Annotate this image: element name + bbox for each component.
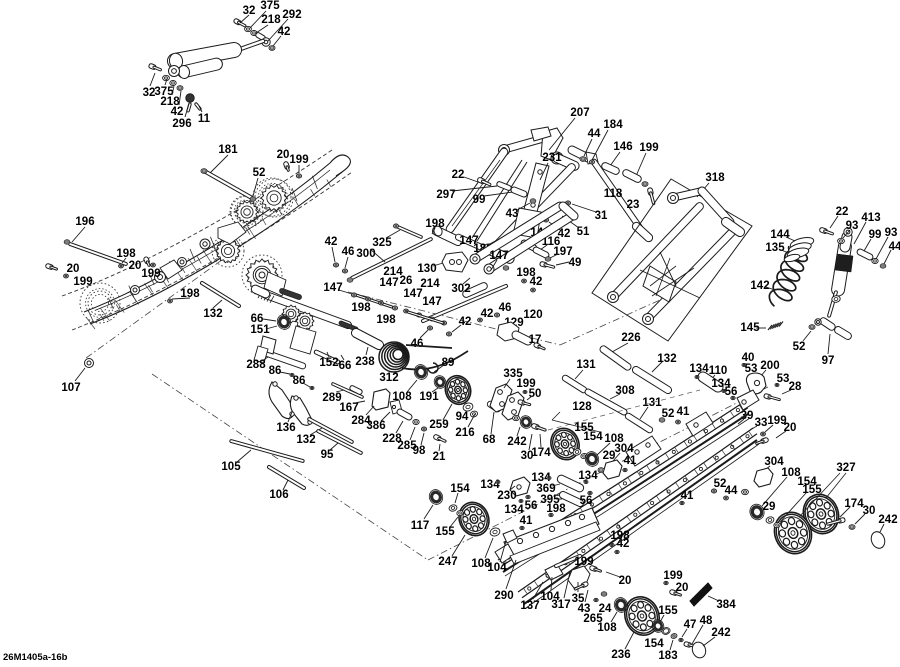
svg-text:120: 120 [523,309,542,321]
svg-text:105: 105 [221,461,241,473]
svg-text:20: 20 [619,575,632,587]
svg-text:375: 375 [260,0,280,12]
svg-text:198: 198 [116,248,136,260]
svg-text:47: 47 [684,619,697,631]
svg-text:42: 42 [617,538,630,550]
svg-text:288: 288 [246,359,266,371]
svg-text:135: 135 [765,242,785,254]
svg-text:136: 136 [276,422,295,434]
svg-text:238: 238 [355,356,375,368]
svg-text:384: 384 [716,599,736,611]
svg-text:46: 46 [499,302,512,314]
svg-text:231: 231 [542,152,562,164]
svg-text:181: 181 [218,144,238,156]
svg-text:33: 33 [755,417,768,429]
svg-text:199: 199 [289,154,308,166]
svg-text:152: 152 [319,357,338,369]
svg-text:52: 52 [253,167,266,179]
svg-text:29: 29 [763,501,776,513]
svg-text:304: 304 [614,443,634,455]
svg-text:199: 199 [663,570,682,582]
svg-text:49: 49 [569,257,582,269]
svg-text:200: 200 [760,360,779,372]
svg-text:147: 147 [379,277,398,289]
svg-text:184: 184 [603,119,623,131]
svg-text:147: 147 [323,282,342,294]
svg-text:56: 56 [525,500,538,512]
svg-text:30: 30 [863,505,876,517]
svg-text:218: 218 [261,14,281,26]
svg-text:413: 413 [861,212,880,224]
svg-text:198: 198 [376,314,396,326]
svg-text:28: 28 [789,381,802,393]
svg-text:290: 290 [494,590,513,602]
svg-text:230: 230 [497,490,516,502]
svg-text:86: 86 [293,375,306,387]
svg-text:41: 41 [520,515,533,527]
svg-text:43: 43 [506,208,519,220]
svg-text:98: 98 [413,445,426,457]
svg-text:128: 128 [572,401,592,413]
svg-text:68: 68 [483,434,496,446]
svg-text:154: 154 [644,638,664,650]
svg-text:134: 134 [578,470,598,482]
svg-text:226: 226 [621,332,640,344]
svg-text:147: 147 [459,235,478,247]
svg-text:147: 147 [422,296,441,308]
svg-text:155: 155 [658,605,678,617]
svg-text:22: 22 [452,169,465,181]
svg-text:53: 53 [777,373,790,385]
svg-text:52: 52 [793,341,806,353]
svg-text:118: 118 [604,188,623,200]
svg-text:31: 31 [595,210,608,222]
svg-text:236: 236 [611,649,630,661]
svg-text:110: 110 [709,365,728,377]
svg-text:242: 242 [878,514,897,526]
svg-text:23: 23 [627,199,640,211]
svg-text:259: 259 [429,419,448,431]
svg-text:247: 247 [438,556,457,568]
svg-text:134: 134 [689,363,709,375]
svg-text:142: 142 [750,280,769,292]
svg-text:147: 147 [489,250,508,262]
svg-text:93: 93 [846,220,859,232]
svg-text:137: 137 [520,600,539,612]
svg-text:146: 146 [613,141,632,153]
svg-text:304: 304 [764,456,784,468]
svg-text:131: 131 [576,359,596,371]
svg-text:296: 296 [172,118,191,130]
svg-text:131: 131 [642,397,662,409]
svg-text:107: 107 [61,382,80,394]
svg-text:42: 42 [481,308,494,320]
svg-text:199: 199 [639,142,658,154]
svg-text:11: 11 [198,113,211,125]
svg-text:386: 386 [366,420,385,432]
svg-text:132: 132 [296,434,315,446]
svg-text:183: 183 [658,650,677,662]
svg-text:21: 21 [433,451,446,463]
svg-text:42: 42 [171,106,184,118]
svg-text:327: 327 [836,462,855,474]
svg-text:132: 132 [203,308,222,320]
svg-text:302: 302 [451,283,470,295]
svg-text:292: 292 [282,9,301,21]
svg-text:265: 265 [583,613,603,625]
svg-text:46: 46 [411,338,424,350]
svg-text:99: 99 [473,194,486,206]
svg-text:312: 312 [379,372,398,384]
svg-text:97: 97 [822,355,835,367]
svg-text:151: 151 [250,324,270,336]
svg-text:44: 44 [588,128,601,140]
svg-text:104: 104 [487,562,507,574]
svg-text:50: 50 [529,388,542,400]
svg-text:191: 191 [419,391,439,403]
svg-text:26M1405a-16b: 26M1405a-16b [3,652,68,663]
svg-text:199: 199 [73,276,92,288]
svg-text:94: 94 [456,411,469,423]
svg-text:42: 42 [459,316,472,328]
svg-text:198: 198 [351,302,371,314]
svg-text:41: 41 [624,455,637,467]
svg-text:26: 26 [400,275,413,287]
svg-text:242: 242 [507,436,526,448]
svg-text:56: 56 [580,495,593,507]
svg-text:216: 216 [455,427,474,439]
svg-text:174: 174 [844,498,864,510]
svg-text:46: 46 [342,246,355,258]
svg-text:86: 86 [269,365,282,377]
svg-text:155: 155 [435,526,455,538]
svg-text:196: 196 [75,216,94,228]
svg-text:144: 144 [770,229,790,241]
svg-text:41: 41 [677,406,690,418]
svg-text:66: 66 [339,360,352,372]
svg-text:147: 147 [403,288,422,300]
svg-text:44: 44 [725,485,738,497]
svg-text:130: 130 [417,263,436,275]
svg-text:167: 167 [339,402,358,414]
svg-text:199: 199 [141,268,160,280]
svg-text:106: 106 [269,489,288,501]
svg-text:93: 93 [885,227,898,239]
svg-text:207: 207 [570,107,589,119]
svg-text:318: 318 [705,172,725,184]
svg-text:20: 20 [129,260,142,272]
svg-text:56: 56 [725,386,738,398]
svg-text:41: 41 [681,490,694,502]
svg-text:20: 20 [784,422,797,434]
svg-text:214: 214 [420,278,440,290]
svg-text:20: 20 [277,149,290,161]
svg-text:154: 154 [583,431,603,443]
svg-text:174: 174 [531,447,551,459]
svg-text:95: 95 [321,449,334,461]
svg-text:52: 52 [662,408,675,420]
svg-text:48: 48 [700,615,713,627]
svg-text:29: 29 [603,450,616,462]
svg-text:154: 154 [450,483,470,495]
svg-text:42: 42 [530,276,543,288]
svg-text:20: 20 [67,263,80,275]
svg-text:317: 317 [551,599,570,611]
svg-text:117: 117 [411,520,430,532]
svg-text:42: 42 [325,236,338,248]
svg-text:300: 300 [356,248,375,260]
svg-text:89: 89 [442,357,455,369]
